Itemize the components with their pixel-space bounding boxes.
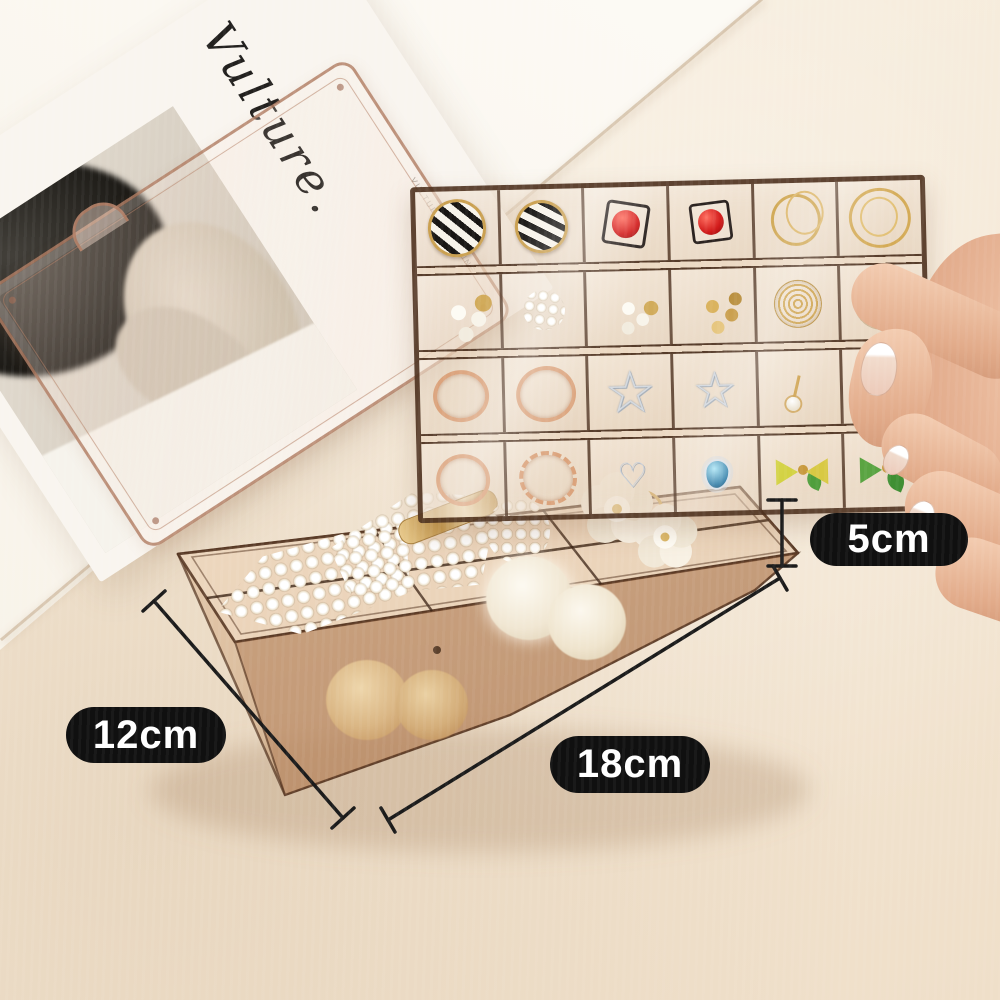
cell-rose-gold-ring (419, 358, 505, 434)
silver-star-earring-icon: ☆ (604, 362, 657, 421)
cell-striped-hoop-earring (500, 188, 586, 264)
white-fur-pompom (548, 584, 626, 660)
cell-red-bead-square-earring (584, 186, 670, 262)
tan-fur-scrunchie (396, 670, 468, 740)
cell-silver-heart-earrings: ♡ (591, 438, 677, 514)
box-front-hole (433, 646, 441, 654)
box-shadow (150, 728, 810, 852)
gold-knot-studs-icon (706, 299, 719, 312)
white-flower-hair-tie (653, 525, 676, 548)
red-bead-square-earring-icon (688, 199, 733, 244)
tray-row: ♡ (421, 432, 928, 518)
bow-leaf (803, 470, 824, 491)
pearl-and-gold-studs-icon (620, 300, 636, 316)
gold-hoop-earrings-icon (770, 193, 821, 246)
cell-pearl-and-gold-studs (586, 270, 672, 346)
width-label: 12cm (66, 707, 226, 763)
pearl-stud-earrings-icon (451, 305, 466, 320)
cell-pearl-cluster-earrings (502, 272, 588, 348)
cell-gold-pearl-dangle-earring (758, 350, 844, 426)
product-photo: Vulture. VULTURE MAGAZINE (0, 0, 1000, 1000)
cell-gold-hoop-earrings (838, 180, 921, 256)
earring-tray: ☆ ☆ ♡ (410, 175, 933, 523)
tray-row (417, 264, 924, 350)
cell-rose-gold-ring (421, 442, 507, 518)
cell-gold-wire-ball-earring (756, 266, 842, 342)
pearl-cluster-earrings-icon (520, 287, 568, 333)
gold-wire-ball-earring-icon (769, 276, 825, 332)
cell-gold-hoop-earrings (754, 182, 840, 258)
rose-gold-ring-icon (434, 452, 492, 508)
cell-silver-star-earring: ☆ (673, 352, 759, 428)
cell-pearl-stud-earrings (417, 274, 503, 350)
cell-striped-hoop-earring (415, 190, 501, 266)
length-label: 18cm (550, 736, 710, 793)
cell-silver-star-earring: ☆ (588, 354, 674, 430)
cell-green-bow-earring (760, 434, 846, 510)
rose-gold-ring-icon (511, 362, 579, 427)
cell-red-bead-square-earring (669, 184, 755, 260)
cell-rose-gold-ring (504, 356, 590, 432)
green-bow-earring-icon (775, 456, 828, 487)
cell-rose-gold-twisted-ring (506, 440, 592, 516)
gold-pearl-dangle-earring-icon (792, 375, 806, 400)
silver-star-earring-icon: ☆ (692, 364, 738, 415)
rose-gold-twisted-ring-icon (513, 445, 581, 510)
blue-crystal-earring-icon (702, 457, 731, 491)
cell-blue-crystal-earring (675, 436, 761, 512)
rose-gold-ring-icon (432, 369, 489, 422)
red-bead-square-earring-icon (601, 199, 651, 249)
striped-hoop-earring-icon (507, 192, 576, 261)
cell-gold-knot-studs (671, 268, 757, 344)
bow-knot (797, 465, 807, 475)
tray-row (415, 180, 922, 266)
gold-hoop-earrings-icon (846, 185, 914, 252)
height-label: 5cm (810, 513, 968, 566)
striped-hoop-earring-icon (423, 195, 490, 262)
silver-heart-earrings-icon: ♡ (617, 456, 648, 497)
